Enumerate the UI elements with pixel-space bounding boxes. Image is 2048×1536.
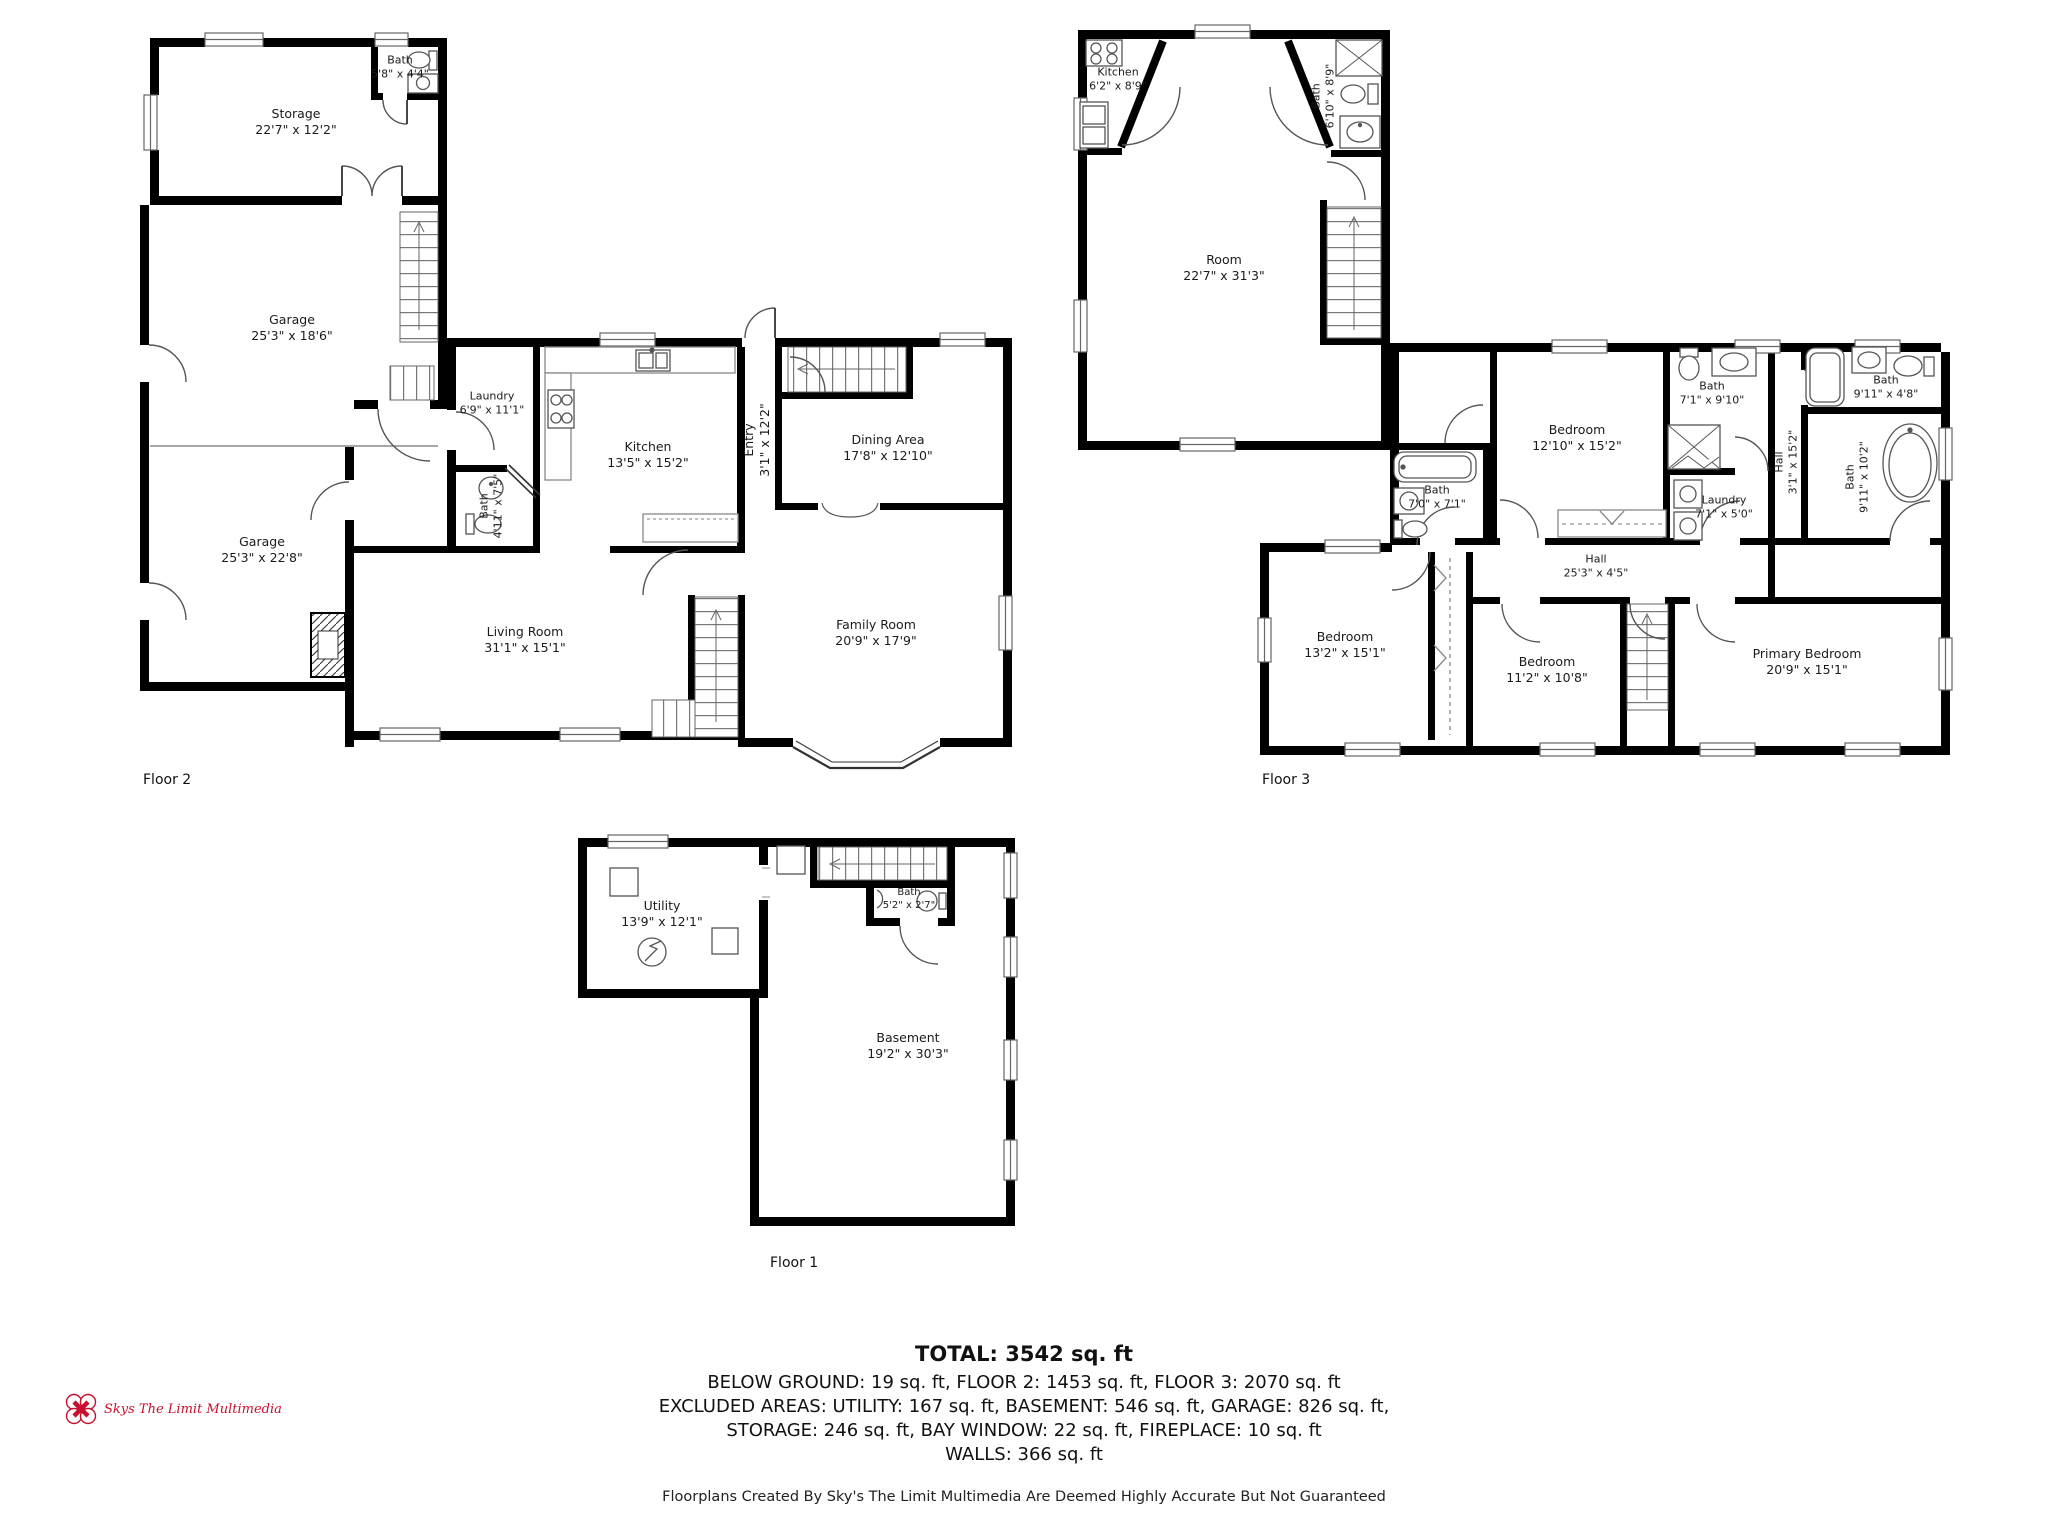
water-heater-icon	[638, 938, 666, 966]
summary-line-3: STORAGE: 246 sq. ft, BAY WINDOW: 22 sq. …	[0, 1419, 2048, 1443]
room-label-entry: Entry3'1" x 12'2"	[741, 403, 774, 476]
floor2-stairs	[390, 212, 906, 737]
floor3-fixtures	[1080, 40, 1937, 735]
room-label-living: Living Room31'1" x 15'1"	[484, 624, 565, 657]
floor2-fixtures	[311, 51, 940, 768]
summary-line-4: WALLS: 366 sq. ft	[0, 1443, 2048, 1467]
room-label-dining: Dining Area17'8" x 12'10"	[843, 432, 932, 465]
room-label-garage-upper: Garage25'3" x 18'6"	[251, 312, 332, 345]
toilet-icon	[1679, 348, 1699, 380]
logo-text: Skys The Limit Multimedia	[104, 1402, 282, 1417]
floor1-walls	[578, 838, 1015, 1226]
logo-flower-icon	[64, 1392, 98, 1426]
fireplace-icon	[311, 613, 345, 677]
room-label-bath-corner: Bath9'11" x 4'8"	[1854, 374, 1919, 403]
bath-sink-icon	[877, 890, 883, 908]
room-label-bath-top: Bath6'10" x 8'9"	[1310, 64, 1339, 129]
soaking-tub-icon	[1883, 424, 1937, 502]
bathtub-icon	[1394, 452, 1476, 482]
room-label-hall-horizontal: Hall25'3" x 4'5"	[1564, 553, 1629, 582]
stove-icon	[548, 390, 574, 428]
kitchen-sink-icon	[636, 348, 670, 371]
toilet-icon	[1394, 520, 1427, 538]
room-label-hall-vertical: Hall3'1" x 15'2"	[1773, 430, 1802, 495]
room-label-storage: Storage22'7" x 12'2"	[255, 106, 336, 139]
room-label-bath-ensuite: Bath7'1" x 9'10"	[1680, 380, 1745, 409]
room-label-storage-bath: Bath5'8" x 4'4"	[371, 54, 429, 83]
room-label-bath-tub: Bath9'11" x 10'2"	[1844, 441, 1873, 513]
vanity-sink-icon	[1712, 348, 1756, 376]
room-label-utility: Utility13'9" x 12'1"	[621, 898, 702, 931]
bay-window	[793, 741, 940, 768]
stove-icon	[1086, 40, 1122, 66]
room-label-bedroom-small: Bedroom11'2" x 10'8"	[1506, 654, 1587, 687]
room-label-garage-lower: Garage25'3" x 22'8"	[221, 534, 302, 567]
floorplan-drawing	[0, 0, 2048, 1536]
equipment-box	[712, 928, 738, 954]
room-label-primary-bedroom: Primary Bedroom20'9" x 15'1"	[1753, 646, 1862, 679]
floorplan-page: Storage22'7" x 12'2" Bath5'8" x 4'4" Gar…	[0, 0, 2048, 1536]
room-label-bath-left: Bath7'0" x 7'1"	[1408, 484, 1466, 513]
total-area: TOTAL: 3542 sq. ft	[0, 1342, 2048, 1366]
equipment-box	[610, 868, 638, 896]
room-label-bath-f1: Bath5'2" x 2'7"	[883, 886, 935, 912]
shower-icon	[1336, 40, 1382, 76]
room-label-room: Room22'7" x 31'3"	[1183, 252, 1264, 285]
room-label-laundry-f3: Laundry7'1" x 5'0"	[1695, 494, 1753, 523]
bath-sink-icon	[1852, 347, 1886, 373]
room-label-bedroom-mid: Bedroom12'10" x 15'2"	[1532, 422, 1621, 455]
summary-line-2: EXCLUDED AREAS: UTILITY: 167 sq. ft, BAS…	[0, 1395, 2048, 1419]
bathtub-icon	[1806, 348, 1844, 406]
area-summary: TOTAL: 3542 sq. ft BELOW GROUND: 19 sq. …	[0, 1342, 2048, 1520]
room-label-bath-f2: Bath4'11" x 7'5"	[478, 474, 507, 539]
floor1-stairs	[818, 847, 947, 880]
room-label-laundry: Laundry6'9" x 11'1"	[460, 390, 525, 419]
toilet-icon	[1341, 84, 1378, 104]
summary-line-1: BELOW GROUND: 19 sq. ft, FLOOR 2: 1453 s…	[0, 1371, 2048, 1395]
disclaimer-text: Floorplans Created By Sky's The Limit Mu…	[0, 1489, 2048, 1505]
equipment-box	[777, 846, 805, 874]
sink-icon	[1340, 116, 1380, 148]
kitchen-sink-icon	[1080, 102, 1108, 148]
brand-logo: Skys The Limit Multimedia	[64, 1392, 282, 1426]
shower-icon	[1668, 425, 1720, 469]
caption-floor1: Floor 1	[770, 1255, 818, 1271]
room-label-kitchen-f3: Kitchen6'2" x 8'9"	[1089, 66, 1147, 95]
room-label-bedroom-left: Bedroom13'2" x 15'1"	[1304, 629, 1385, 662]
closet-dashes	[1434, 558, 1450, 735]
room-label-family: Family Room20'9" x 17'9"	[835, 617, 916, 650]
room-label-basement: Basement19'2" x 30'3"	[867, 1030, 948, 1063]
bedroom-closet	[1558, 510, 1666, 537]
caption-floor2: Floor 2	[143, 772, 191, 788]
room-label-kitchen-f2: Kitchen13'5" x 15'2"	[607, 439, 688, 472]
caption-floor3: Floor 3	[1262, 772, 1310, 788]
